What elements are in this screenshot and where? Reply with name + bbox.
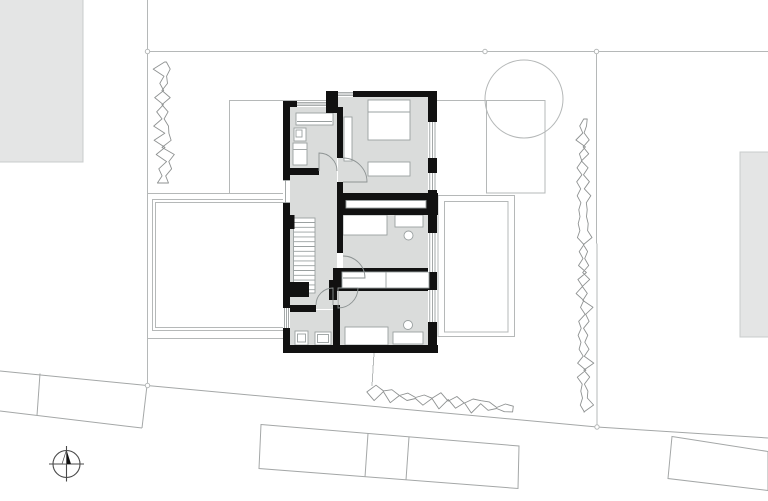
neighbor-building-northwest xyxy=(0,0,83,162)
terrace-east-outer xyxy=(438,196,515,337)
duct-shaft xyxy=(290,282,309,297)
garage-plot-northeast xyxy=(487,101,546,194)
wall-east-5 xyxy=(428,322,437,353)
wall-north-right xyxy=(353,91,428,97)
window-east-bedroom2 xyxy=(428,233,437,272)
bedroom2-stool xyxy=(404,231,413,240)
boundary-line-east xyxy=(597,51,598,427)
window-north-bedroom1 xyxy=(338,91,353,97)
terrace-west-outer xyxy=(153,200,285,331)
hedge-east xyxy=(576,119,594,412)
bathroom-wc-bowl xyxy=(298,334,306,342)
closet-bedroom1-2 xyxy=(346,201,426,209)
wall-east-2 xyxy=(428,158,437,173)
boundary-node xyxy=(595,425,599,429)
garage-row-east xyxy=(668,437,768,491)
stair-outline xyxy=(294,218,316,293)
boundary-node xyxy=(483,49,487,53)
driveway-edge-left xyxy=(37,374,40,416)
staircase xyxy=(294,218,316,293)
window-west-bathroom xyxy=(283,308,290,328)
wall-south xyxy=(283,345,438,353)
hedge-west xyxy=(153,62,174,183)
bedroom3-stool xyxy=(404,321,413,330)
boundary-node xyxy=(594,49,598,53)
boundary-node xyxy=(145,49,149,53)
wall-stair-stub xyxy=(290,215,295,229)
wall-west-middle xyxy=(283,203,290,308)
street-edge-south-west xyxy=(0,411,142,428)
wall-north-step xyxy=(326,91,338,113)
bedroom2-desk xyxy=(395,215,423,227)
street-edge-north xyxy=(0,371,768,438)
window-east-bedroom3 xyxy=(428,290,437,322)
wall-hall-bedroom2 xyxy=(337,215,343,253)
bedroom1-sideboard xyxy=(368,162,410,176)
bedroom1-wardrobe xyxy=(344,117,352,161)
window-north-utility xyxy=(297,101,326,107)
bathroom-sink-bowl xyxy=(318,335,329,343)
north-arrow xyxy=(49,446,84,482)
garage-row-west xyxy=(259,425,519,489)
compass-needle-dark xyxy=(67,450,72,464)
wall-bathroom-bedroom3 xyxy=(333,305,340,345)
terrace-east-inner xyxy=(445,202,509,333)
utility-washbasin-bowl xyxy=(296,130,302,137)
bedroom2-dresser xyxy=(343,215,387,235)
entrance-door xyxy=(283,180,290,203)
hedge-south xyxy=(367,385,513,413)
tree-circle xyxy=(485,60,563,138)
neighbor-building-east xyxy=(740,152,768,337)
site-plan-canvas xyxy=(0,0,768,501)
utility-shelf xyxy=(296,113,333,125)
window-east-bedroom1-b xyxy=(428,173,437,190)
boundary-node xyxy=(145,383,149,387)
bedroom1-bed xyxy=(368,100,410,140)
wall-north-left xyxy=(283,101,297,107)
compass-needle-light xyxy=(62,450,67,464)
wall-east-1 xyxy=(428,91,437,122)
closet-bedroom2-3 xyxy=(342,272,429,288)
path-line-south xyxy=(372,353,374,386)
utility-appliance xyxy=(293,143,307,165)
wall-hall-bedroom1 xyxy=(337,107,343,158)
wall-utility-south xyxy=(285,168,319,175)
wall-stub-bedroom1-door xyxy=(337,182,343,193)
driveway-edge-right xyxy=(142,386,147,429)
terrace-west-inner xyxy=(156,203,285,328)
window-east-bedroom1-a xyxy=(428,122,437,158)
wall-bathroom-north xyxy=(290,305,316,312)
site-boundaries xyxy=(147,0,768,427)
bedroom3-desk xyxy=(393,332,423,344)
street xyxy=(0,371,768,491)
bedroom3-bed xyxy=(345,327,388,345)
